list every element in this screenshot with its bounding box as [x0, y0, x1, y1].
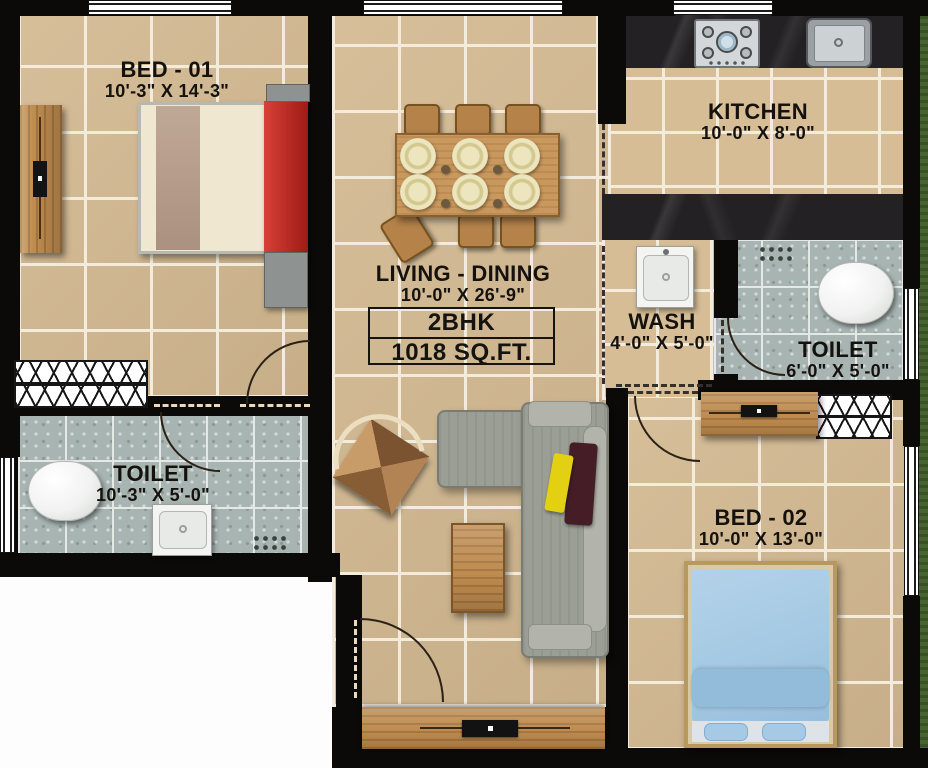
wall-bed1-living	[308, 0, 332, 582]
dinner-plate	[452, 138, 488, 174]
window-toilet-left	[0, 457, 15, 553]
wall-top-2	[230, 0, 365, 16]
stove-burner	[702, 47, 714, 59]
stove-burner	[740, 47, 752, 59]
wardrobe-handle-dot	[38, 176, 42, 181]
shower-icon	[758, 245, 792, 263]
wall-kitchen-left	[598, 0, 626, 124]
window-living-top	[363, 0, 563, 15]
dining-chair	[455, 104, 491, 136]
toilet-right-label: TOILET 6'-0" X 5'-0"	[786, 338, 890, 382]
wash-name: WASH	[610, 310, 714, 334]
bed2-blanket	[692, 569, 829, 721]
stove-burner	[740, 26, 752, 38]
toilet-left-opening-dash	[154, 404, 220, 407]
kitchen-name: KITCHEN	[701, 100, 815, 124]
bed2-name: BED - 02	[699, 506, 823, 530]
bed2-pillow	[704, 723, 748, 741]
window-bed1-top	[88, 0, 232, 15]
bed2-blanket-fold	[692, 669, 829, 707]
sofa-armrest-top	[528, 401, 592, 427]
window-bed2-right	[904, 446, 919, 596]
living-tv	[462, 720, 518, 737]
kitchen-opening-dash	[602, 124, 605, 194]
dining-chair	[505, 104, 541, 136]
toilet-right-opening-dash	[721, 320, 724, 372]
bed2-tv-cabinet	[701, 392, 818, 436]
outside-area	[0, 577, 337, 768]
wash-label: WASH 4'-0" X 5'-0"	[610, 310, 714, 354]
bed2-opening-dash	[628, 391, 698, 394]
wall-toilet-left-bottom	[0, 553, 340, 577]
kitchen-label: KITCHEN 10'-0" X 8'-0"	[701, 100, 815, 144]
stove-burner-center	[716, 31, 738, 53]
stove-burner	[702, 26, 714, 38]
sink-drain	[834, 38, 843, 47]
wall-right-1	[903, 0, 920, 288]
unit-info-box: 2BHK 1018 SQ.FT.	[368, 307, 555, 365]
dining-chair	[500, 214, 536, 248]
bed1-side-table-top	[266, 84, 310, 102]
toilet-left-name: TOILET	[96, 462, 210, 486]
bed1-name: BED - 01	[105, 58, 229, 82]
dinner-plate	[400, 174, 436, 210]
wash-basin-tap	[663, 249, 669, 255]
kitchen-dims: 10'-0" X 8'-0"	[701, 124, 815, 144]
toilet-left-basin	[152, 504, 212, 556]
bed1-dims: 10'-3" X 14'-3"	[105, 82, 229, 102]
wardrobe-handle	[33, 161, 47, 197]
wash-dims: 4'-0" X 5'-0"	[610, 334, 714, 354]
coffee-table	[451, 523, 505, 613]
dinner-plate	[504, 174, 540, 210]
window-kitchen-top	[673, 0, 773, 15]
cup	[441, 199, 450, 208]
bed1-wardrobe	[20, 105, 62, 253]
tv-dot	[488, 726, 493, 731]
wash-passage-dash	[602, 246, 605, 384]
tv-dot	[757, 409, 761, 413]
bed1-headboard	[264, 101, 308, 254]
bed2-label: BED - 02 10'-0" X 13'-0"	[699, 506, 823, 550]
wall-right-3	[903, 596, 920, 768]
wall-living-bed2	[606, 388, 628, 768]
floor-plan: BED - 01 10'-3" X 14'-3" KITCHEN 10'-0" …	[0, 0, 928, 768]
stove-knobs	[707, 61, 749, 65]
sofa-armrest-bottom	[528, 624, 592, 650]
cup	[493, 199, 502, 208]
kitchen-sink	[806, 18, 872, 68]
gas-stove	[694, 19, 760, 68]
unit-area: 1018 SQ.FT.	[370, 337, 553, 367]
wall-wash-toilet-b	[714, 374, 738, 390]
wall-right-2	[903, 380, 920, 446]
toilet-left-wc	[28, 461, 102, 521]
bed1-label: BED - 01 10'-3" X 14'-3"	[105, 58, 229, 102]
bed1-opening-dash	[240, 404, 310, 407]
bed2-pillow	[762, 723, 806, 741]
living-label: LIVING - DINING 10'-0" X 26'-9"	[376, 262, 550, 306]
cup	[493, 165, 502, 174]
living-tv-cabinet	[362, 707, 605, 749]
window-bay-left	[14, 360, 148, 408]
bed2-dims: 10'-0" X 13'-0"	[699, 530, 823, 550]
dinner-plate	[504, 138, 540, 174]
wall-wash-toilet-a	[714, 240, 738, 318]
toilet-right-dims: 6'-0" X 5'-0"	[786, 362, 890, 382]
toilet-right-wc	[818, 262, 894, 324]
dinner-plate	[400, 138, 436, 174]
bed1-side-table-bottom	[264, 252, 308, 308]
bed2-bed-frame	[684, 561, 837, 748]
toilet-left-label: TOILET 10'-3" X 5'-0"	[96, 462, 210, 506]
living-name: LIVING - DINING	[376, 262, 550, 286]
wall-bottom	[336, 748, 928, 768]
toilet-left-basin-drain	[179, 525, 187, 533]
wash-basin-drain	[662, 273, 670, 281]
wash-basin	[636, 246, 694, 308]
toilet-left-dims: 10'-3" X 5'-0"	[96, 486, 210, 506]
bed1-blanket	[156, 106, 200, 250]
living-dims: 10'-0" X 26'-9"	[376, 286, 550, 306]
window-bay-bed2	[816, 394, 892, 439]
entrance-opening-dash	[354, 620, 357, 698]
shower-icon	[252, 534, 290, 552]
dining-chair	[404, 104, 440, 136]
cup	[441, 165, 450, 174]
kitchen-counter-bottom	[602, 194, 904, 240]
window-toilet-right	[904, 288, 919, 380]
dining-chair	[458, 214, 494, 248]
wash-bottom-dash	[616, 384, 712, 387]
bed2-tv	[741, 405, 777, 417]
unit-type: 2BHK	[370, 309, 553, 337]
dinner-plate	[452, 174, 488, 210]
toilet-right-name: TOILET	[786, 338, 890, 362]
